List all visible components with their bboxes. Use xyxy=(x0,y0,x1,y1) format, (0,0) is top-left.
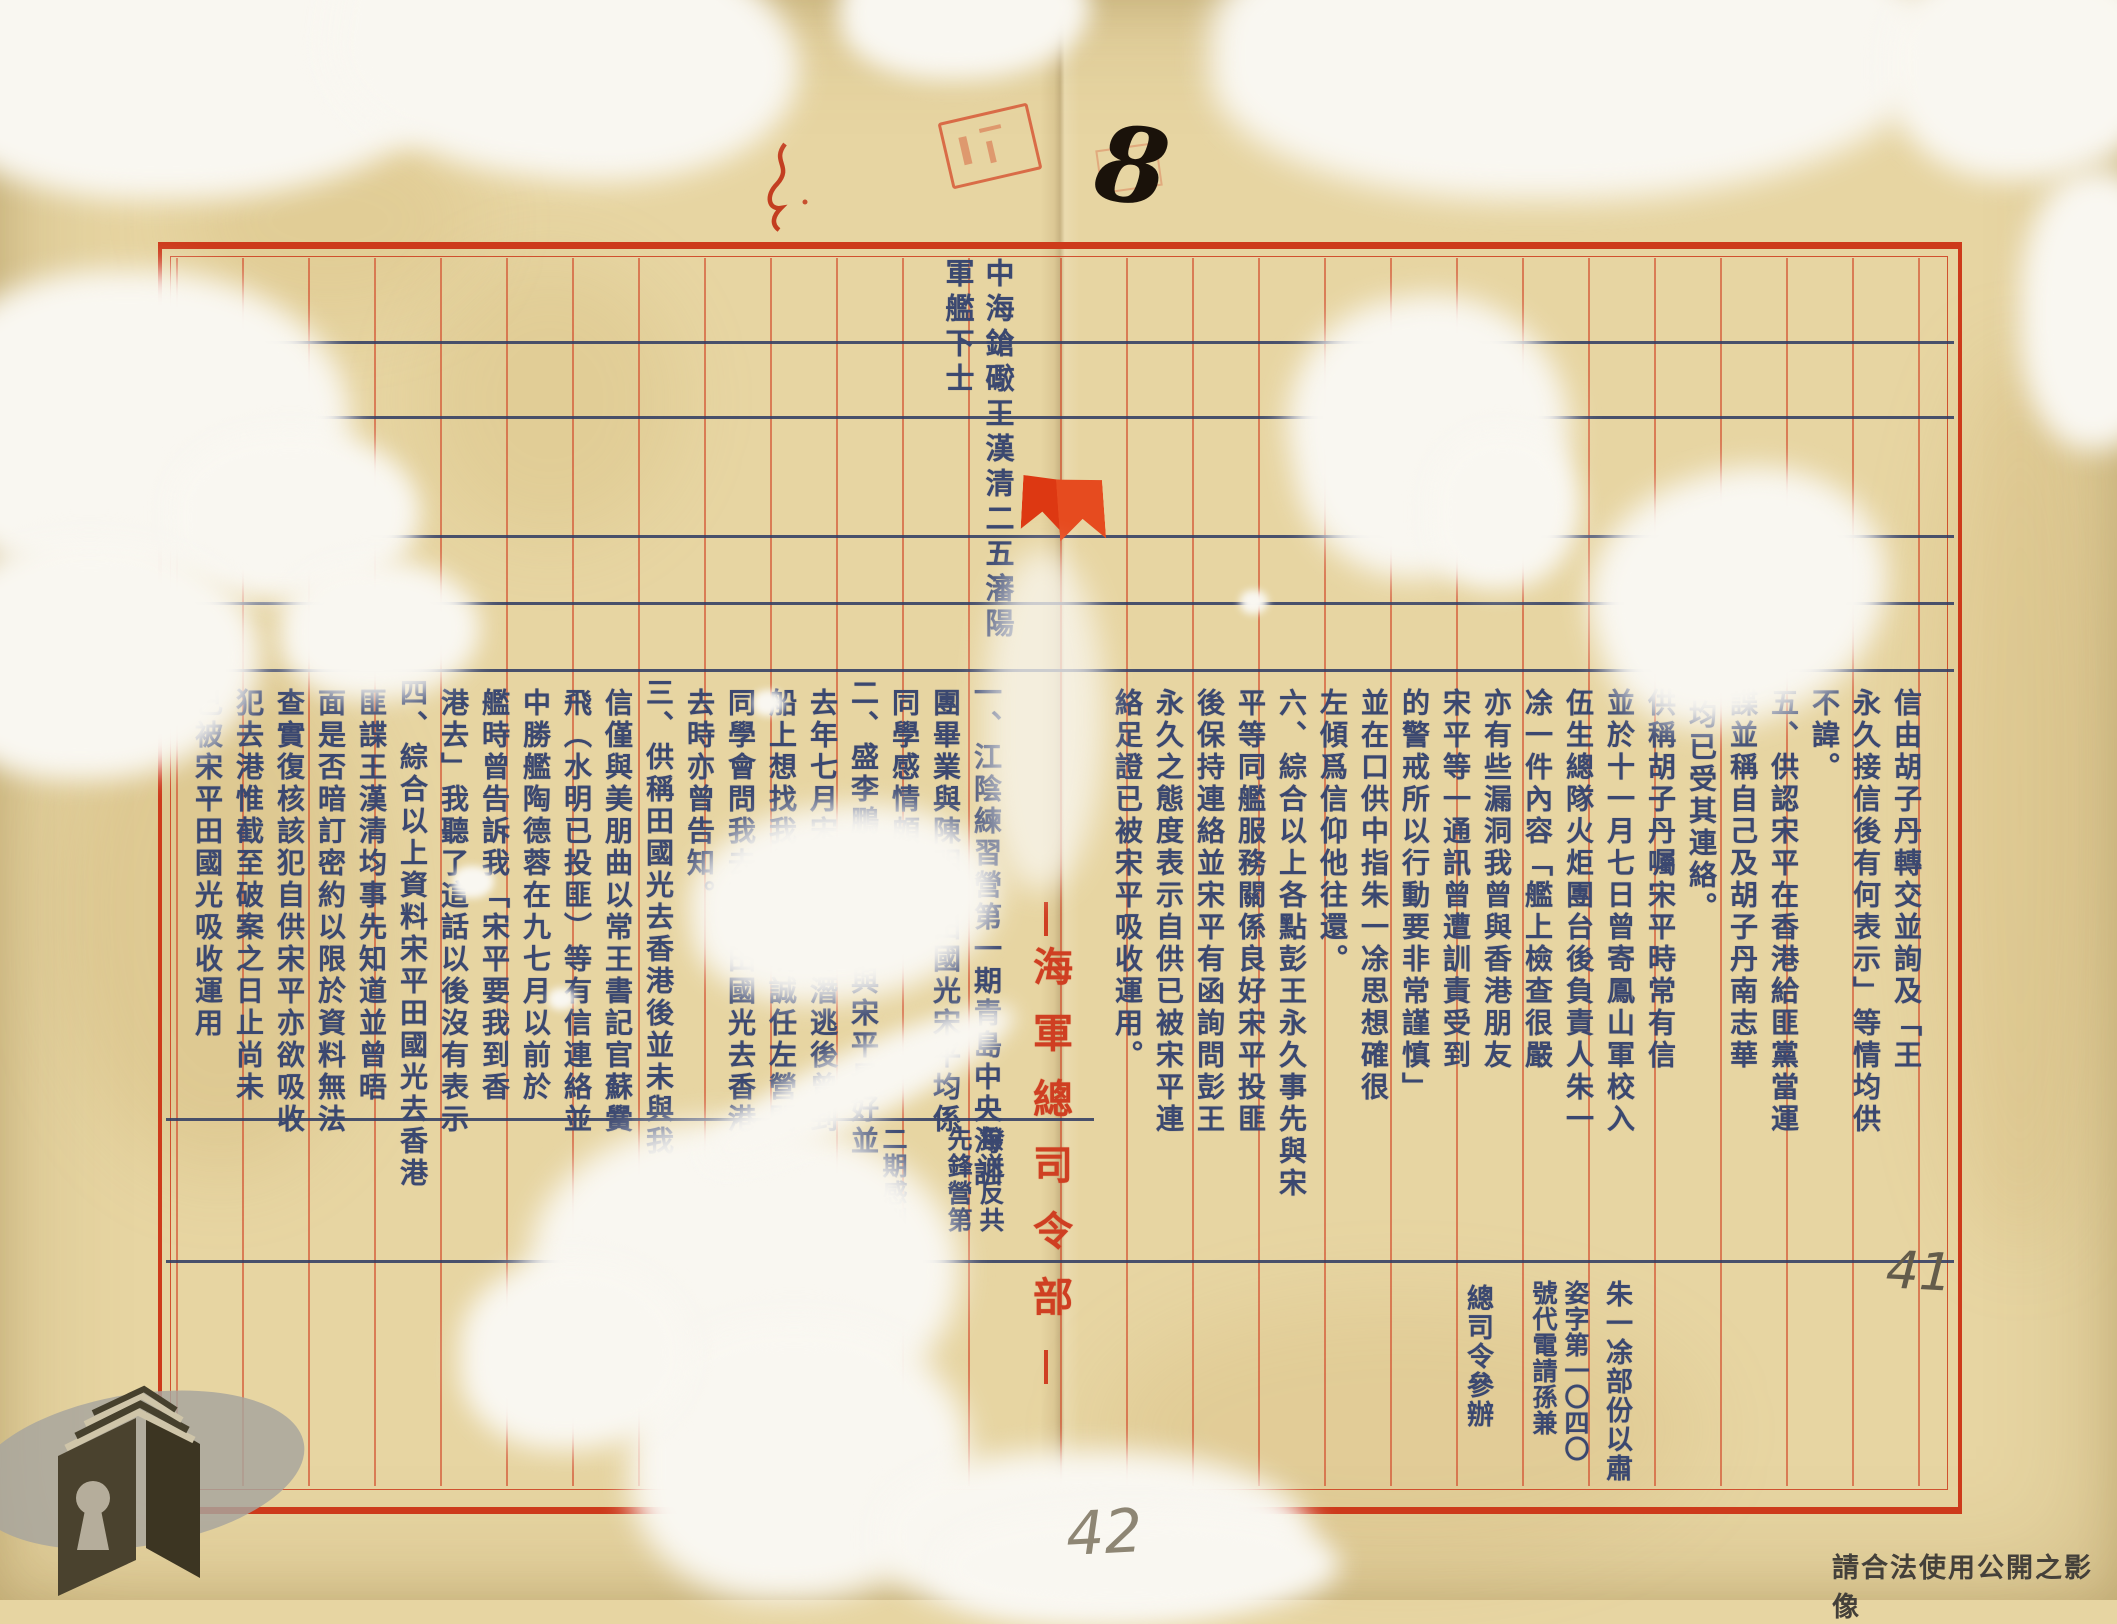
text-column: 均已受其連絡。 xyxy=(1680,700,1721,924)
text-column: 六、綜合以上各點彭王永久事先與宋 xyxy=(1270,688,1311,1200)
text-column: 左傾爲信仰他往還。 xyxy=(1311,688,1352,976)
signature-column: 朱一凃部份以肅 xyxy=(1601,1280,1633,1483)
spine-bracket-bottom xyxy=(1044,1350,1048,1384)
text-column: 宋平等一通訊曾遭訓責受到 xyxy=(1434,688,1475,1072)
text-column: 諜並稱自己及胡子丹南志華 xyxy=(1721,688,1762,1072)
text-column: 後保持連絡並宋平有函詢問彭王 xyxy=(1188,688,1229,1136)
text-column: 信僅與美朋曲以常王書記官蘇黌 xyxy=(596,688,637,1136)
signature-column: 姿字第一〇四〇 xyxy=(1559,1280,1589,1462)
text-column: 永久之態度表示自供已被宋平連 xyxy=(1147,688,1188,1136)
text-column: 並於十一月七日曾寄鳳山軍校入 xyxy=(1598,688,1639,1136)
text-column: 四、綜合以上資料宋平田國光去香港 xyxy=(391,678,432,1190)
handwritten-page-number-top: 8 xyxy=(1089,100,1176,231)
rule-line xyxy=(166,416,1954,419)
text-column: 供稱胡子丹囑宋平時常有信 xyxy=(1639,688,1680,1072)
scanned-archive-document: { "doc": { "title_spine": "海軍總司令部", "hea… xyxy=(0,0,2117,1600)
text-column: 查實復核該犯自供宋平亦欲吸收 xyxy=(268,688,309,1136)
text-column: 匪諜王漢清均事先知道並曾晤 xyxy=(350,688,391,1104)
text-column: 永久接信後有何表示」等情均供 xyxy=(1844,688,1885,1136)
text-column: 不諱。 xyxy=(1803,688,1844,784)
text-column: 凃一件內容「艦上檢查很嚴 xyxy=(1516,688,1557,1072)
spine-bracket-top xyxy=(1044,902,1048,936)
handwritten-page-number-bottom-center: 42 xyxy=(1064,1496,1144,1570)
rule-line xyxy=(166,341,1954,344)
text-column: 絡足證已被宋平吸收運用。 xyxy=(1106,688,1147,1072)
text-column: 並在口供中指朱一凃思想確很 xyxy=(1352,688,1393,1104)
red-squiggle-mark xyxy=(755,140,815,235)
usage-watermark: 請合法使用公開之影像 xyxy=(1832,1546,2117,1624)
text-column: 伍生總隊火炬團台後負責人朱一 xyxy=(1557,688,1598,1136)
handwritten-page-number-bottom-right: 41 xyxy=(1884,1240,1953,1303)
text-column: 的警戒所以行動要非常謹慎」 xyxy=(1393,688,1434,1104)
archives-book-keyhole-icon xyxy=(0,1378,308,1603)
text-column: 港去」我聽了這話以後沒有表示 xyxy=(432,688,473,1136)
signature-column: 號代電請孫兼 xyxy=(1527,1280,1557,1436)
text-column: 中勝艦陶德蓉在九七月以前於 xyxy=(514,688,555,1104)
text-column: 五、供認宋平在香港給匪黨當運 xyxy=(1762,688,1803,1136)
spine-title: 海軍總司令部 xyxy=(1026,946,1072,1342)
text-column: 平等同艦服務關係良好宋平投匪 xyxy=(1229,688,1270,1136)
note-column: 撥送反共 xyxy=(974,1126,1005,1234)
text-column: 信由胡子丹轉交並詢及「王 xyxy=(1885,688,1926,1072)
text-column: 亦有些漏洞我曾與香港朋友 xyxy=(1475,688,1516,1072)
text-column: 面是否暗訂密約以限於資料無法 xyxy=(309,688,350,1136)
text-column: 三、供稱田國光去香港後並未與我 xyxy=(637,678,678,1158)
header-rank-column: 軍艦下士 xyxy=(936,258,977,398)
text-column: 犯去港惟截至破案之日止尚未 xyxy=(227,688,268,1104)
text-column: 飛（水明已投匪）等有信連絡並 xyxy=(555,688,596,1136)
signature-column: 總司令參辦 xyxy=(1462,1284,1494,1429)
